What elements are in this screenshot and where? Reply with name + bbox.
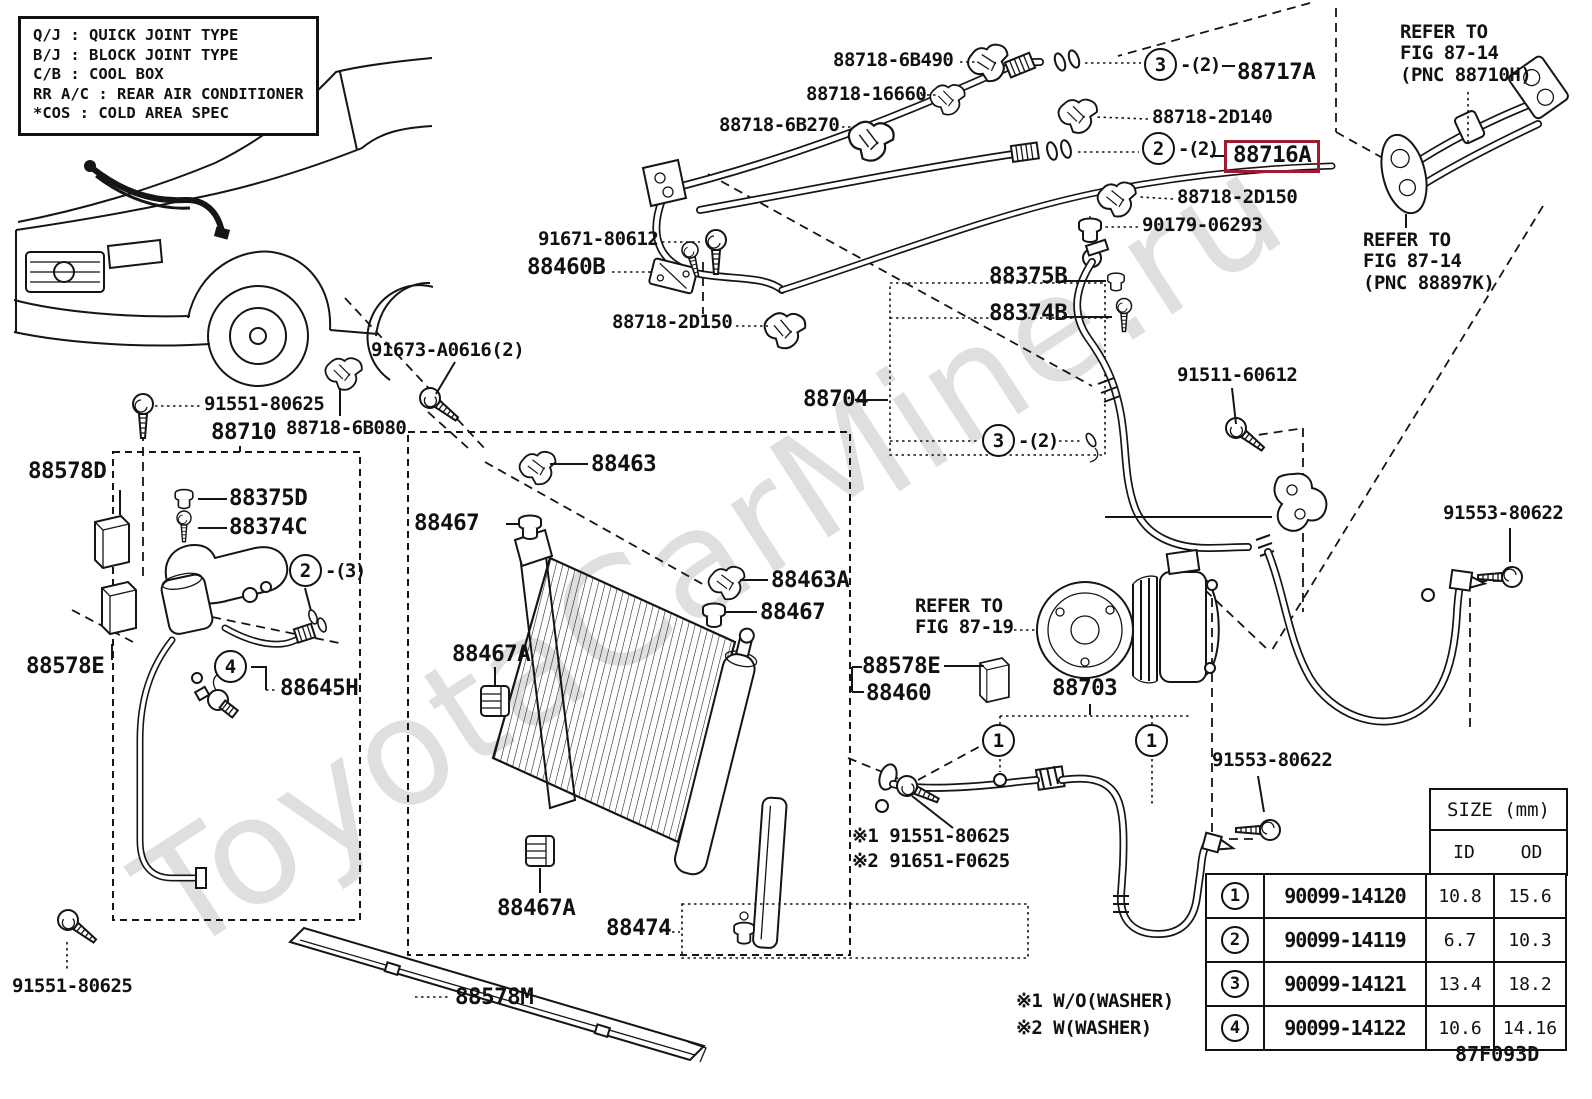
callout-number: 2 (1142, 132, 1175, 165)
washer-note-1: ※1 W/O(WASHER) (1016, 988, 1174, 1015)
bolt-icon (1236, 820, 1280, 840)
callout-3-lower[interactable]: 3-(2) (982, 424, 1058, 457)
callout-number: 1 (982, 724, 1015, 757)
part-label-91511-60612[interactable]: 91511-60612 (1177, 365, 1297, 386)
part-label-88718-2d150-left[interactable]: 88718-2D150 (612, 312, 732, 333)
part-label-88718-6b270[interactable]: 88718-6B270 (719, 115, 839, 136)
callout-number: 4 (214, 650, 247, 683)
row-outer-diameter: 18.2 (1495, 963, 1565, 1005)
callout-2-mid[interactable]: 2-(2) (1142, 132, 1218, 165)
pipe-clamp-icon (763, 311, 806, 350)
callout-number: 1 (1135, 724, 1168, 757)
cushion-clip-icon (526, 836, 554, 866)
row-inner-diameter: 10.8 (1427, 875, 1495, 917)
discharge-pipe-group-88704 (890, 240, 1274, 556)
legend-row: RR A/C : REAR AIR CONDITIONER (33, 85, 304, 105)
tube-fitting-icon (1011, 142, 1039, 161)
callout-number: 3 (1144, 48, 1177, 81)
part-label-91553-80622-bottom[interactable]: 91553-80622 (1212, 750, 1332, 771)
tube-fitting-icon (294, 624, 315, 643)
callout-3-top[interactable]: 3-(2) (1144, 48, 1220, 81)
part-label-88645h[interactable]: 88645H (280, 676, 358, 701)
refer-note-fig-87-14-bottom[interactable]: REFER TO FIG 87-14 (PNC 88897K) (1363, 230, 1494, 294)
oring-icon (1045, 141, 1058, 161)
callout-quantity: -(2) (1178, 138, 1218, 160)
part-label-88718-2d140[interactable]: 88718-2D140 (1152, 107, 1272, 128)
legend-row: Q/J : QUICK JOINT TYPE (33, 26, 304, 46)
row-part-number: 90099-14121 (1265, 963, 1427, 1005)
oring-icon (1059, 139, 1072, 159)
row-outer-diameter: 15.6 (1495, 875, 1565, 917)
row-part-number: 90099-14119 (1265, 919, 1427, 961)
oring-icon (1084, 432, 1097, 448)
oring-icon (316, 617, 328, 633)
part-label-91551-80625-bottom[interactable]: 91551-80625 (12, 976, 132, 997)
part-label-88467a-bottom[interactable]: 88467A (497, 896, 575, 921)
pad-icon (95, 516, 129, 568)
pipe-clamp-icon (1059, 100, 1097, 133)
part-label-88375b[interactable]: 88375B (989, 264, 1067, 289)
condenser-clamp-icon (707, 565, 747, 601)
bolt-icon (416, 384, 463, 427)
washer-notes: ※1 W/O(WASHER) ※2 W(WASHER) (1016, 988, 1174, 1042)
refer-note-fig-87-14-top[interactable]: REFER TO FIG 87-14 (PNC 88710H) (1400, 22, 1531, 86)
part-label-88463[interactable]: 88463 (591, 452, 656, 477)
row-number-circle: 2 (1221, 926, 1249, 954)
part-label-88463a[interactable]: 88463A (771, 568, 849, 593)
mount-stud-icon (734, 923, 754, 944)
part-label-88716a[interactable]: 88716A (1224, 140, 1320, 173)
part-label-88375d[interactable]: 88375D (229, 486, 307, 511)
row-number-circle: 4 (1221, 1014, 1249, 1042)
part-label-90179-06293[interactable]: 90179-06293 (1142, 215, 1262, 236)
part-label-88718-2d150-right[interactable]: 88718-2D150 (1177, 187, 1297, 208)
part-label-88578e-right[interactable]: 88578E (862, 654, 940, 679)
legend-row: C/B : COOL BOX (33, 65, 304, 85)
part-label-88467-mid[interactable]: 88467 (760, 600, 825, 625)
size-table-col-id: ID (1429, 829, 1499, 876)
size-table-col-od: OD (1497, 829, 1568, 876)
part-label-88374b[interactable]: 88374B (989, 301, 1067, 326)
row-number-circle: 3 (1221, 970, 1249, 998)
side-seal-icon (753, 797, 787, 948)
part-label-88710[interactable]: 88710 (211, 420, 276, 445)
size-table-row[interactable]: 190099-1412010.815.6 (1207, 875, 1565, 919)
part-label-88474[interactable]: 88474 (606, 916, 671, 941)
legend-row: *COS : COLD AREA SPEC (33, 104, 304, 124)
grommet-icon (519, 516, 541, 540)
service-valve-cap-icon (1108, 273, 1125, 291)
bolt-icon (1222, 414, 1269, 457)
part-label-88374c[interactable]: 88374C (229, 515, 307, 540)
row-inner-diameter: 13.4 (1427, 963, 1495, 1005)
engine-bay-ac-pipes-icon (84, 160, 230, 240)
callout-4[interactable]: 4 (214, 650, 247, 683)
callout-quantity: -(3) (325, 560, 365, 582)
grommet-icon (1079, 219, 1101, 243)
part-label-88460[interactable]: 88460 (866, 681, 931, 706)
callout-1-left[interactable]: 1 (982, 724, 1015, 757)
part-label-88718-16660[interactable]: 88718-16660 (806, 84, 926, 105)
part-label-91673-a0616[interactable]: 91673-A0616(2) (371, 340, 524, 361)
washer-note-2: ※2 W(WASHER) (1016, 1015, 1174, 1042)
bolt-icon (706, 230, 726, 274)
part-label-88460b[interactable]: 88460B (527, 255, 605, 280)
part-label-88578e-left[interactable]: 88578E (26, 654, 104, 679)
parts-diagram-page: { "watermark": "ToyotaCarMine.ru", "fig_… (0, 0, 1592, 1099)
part-label-88704[interactable]: 88704 (803, 387, 868, 412)
row-inner-diameter: 6.7 (1427, 919, 1495, 961)
pipe-clamp-icon (1096, 181, 1138, 218)
row-part-number: 90099-14120 (1265, 875, 1427, 917)
refer-note-fig-87-19[interactable]: REFER TO FIG 87-19 (915, 596, 1013, 639)
callout-quantity: -(2) (1018, 430, 1058, 452)
row-outer-diameter: 10.3 (1495, 919, 1565, 961)
part-label-91553-80622-top[interactable]: 91553-80622 (1443, 503, 1563, 524)
part-label-88718-6b080[interactable]: 88718-6B080 (286, 418, 406, 439)
row-part-number: 90099-14122 (1265, 1007, 1427, 1049)
note-part-91551-80625[interactable]: ※1 91551-80625 (852, 826, 1010, 847)
callout-2-left[interactable]: 2-(3) (289, 554, 365, 587)
condenser-clamp-icon (518, 450, 558, 486)
pad-icon (102, 582, 136, 634)
pad-icon (980, 658, 1009, 702)
part-label-88718-6b490[interactable]: 88718-6B490 (833, 50, 953, 71)
part-label-88578m[interactable]: 88578M (455, 985, 533, 1010)
service-valve-icon (177, 511, 191, 542)
callout-number: 3 (982, 424, 1015, 457)
pipe-clamp-icon (325, 358, 361, 390)
service-valve-cap-icon (175, 490, 193, 509)
size-table-title: SIZE (mm) (1429, 788, 1568, 831)
row-number-circle: 1 (1221, 882, 1249, 910)
legend-box: Q/J : QUICK JOINT TYPEB/J : BLOCK JOINT … (18, 16, 319, 136)
part-label-91671-80612[interactable]: 91671-80612 (538, 229, 658, 250)
oring-icon (1067, 49, 1082, 69)
bolt-icon (133, 394, 153, 438)
size-table-row[interactable]: 290099-141196.710.3 (1207, 919, 1565, 963)
callout-number: 2 (289, 554, 322, 587)
part-label-88467a-left[interactable]: 88467A (452, 642, 530, 667)
hose-fitting-icon (1450, 570, 1486, 593)
part-label-88703[interactable]: 88703 (1052, 676, 1117, 701)
callout-1-right[interactable]: 1 (1135, 724, 1168, 757)
part-label-91551-80625-top[interactable]: 91551-80625 (204, 394, 324, 415)
figure-code: 87F093D (1455, 1042, 1539, 1066)
part-label-88717a[interactable]: 88717A (1237, 60, 1315, 85)
grommet-icon (703, 604, 725, 628)
legend-row: B/J : BLOCK JOINT TYPE (33, 46, 304, 66)
part-label-88578d[interactable]: 88578D (28, 459, 106, 484)
pipe-clamp-icon (846, 119, 895, 163)
note-part-91651-f0625[interactable]: ※2 91651-F0625 (852, 851, 1010, 872)
tube-fitting-icon (1005, 53, 1035, 78)
part-label-88467-top[interactable]: 88467 (414, 511, 479, 536)
cushion-clip-icon (481, 686, 509, 716)
pipe-clamp-icon (930, 85, 964, 115)
bolt-icon (54, 906, 101, 949)
size-table-row[interactable]: 390099-1412113.418.2 (1207, 963, 1565, 1007)
service-valve-icon (1117, 299, 1132, 332)
callout-quantity: -(2) (1180, 54, 1220, 76)
oring-icon (1053, 52, 1068, 72)
